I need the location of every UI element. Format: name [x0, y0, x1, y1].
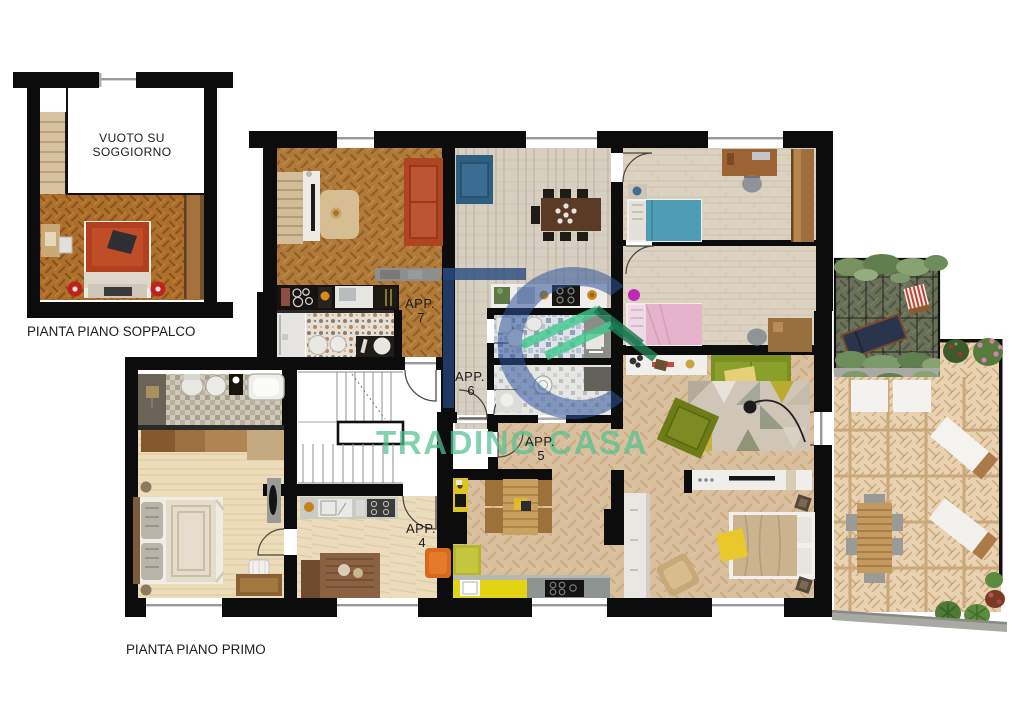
svg-text:APP.: APP.: [406, 521, 436, 536]
svg-text:PIANTA PIANO PRIMO: PIANTA PIANO PRIMO: [126, 642, 266, 657]
svg-text:7: 7: [417, 310, 424, 325]
svg-text:6: 6: [467, 383, 474, 398]
svg-text:TRADING CASA: TRADING CASA: [376, 424, 648, 461]
svg-text:4: 4: [418, 535, 425, 550]
svg-text:VUOTO SU: VUOTO SU: [99, 131, 165, 145]
svg-text:APP.: APP.: [455, 369, 485, 384]
svg-text:APP.: APP.: [525, 434, 555, 449]
svg-text:5: 5: [537, 448, 544, 463]
svg-text:APP.: APP.: [405, 296, 435, 311]
svg-text:SOGGIORNO: SOGGIORNO: [93, 145, 172, 159]
svg-text:PIANTA PIANO SOPPALCO: PIANTA PIANO SOPPALCO: [27, 324, 195, 339]
